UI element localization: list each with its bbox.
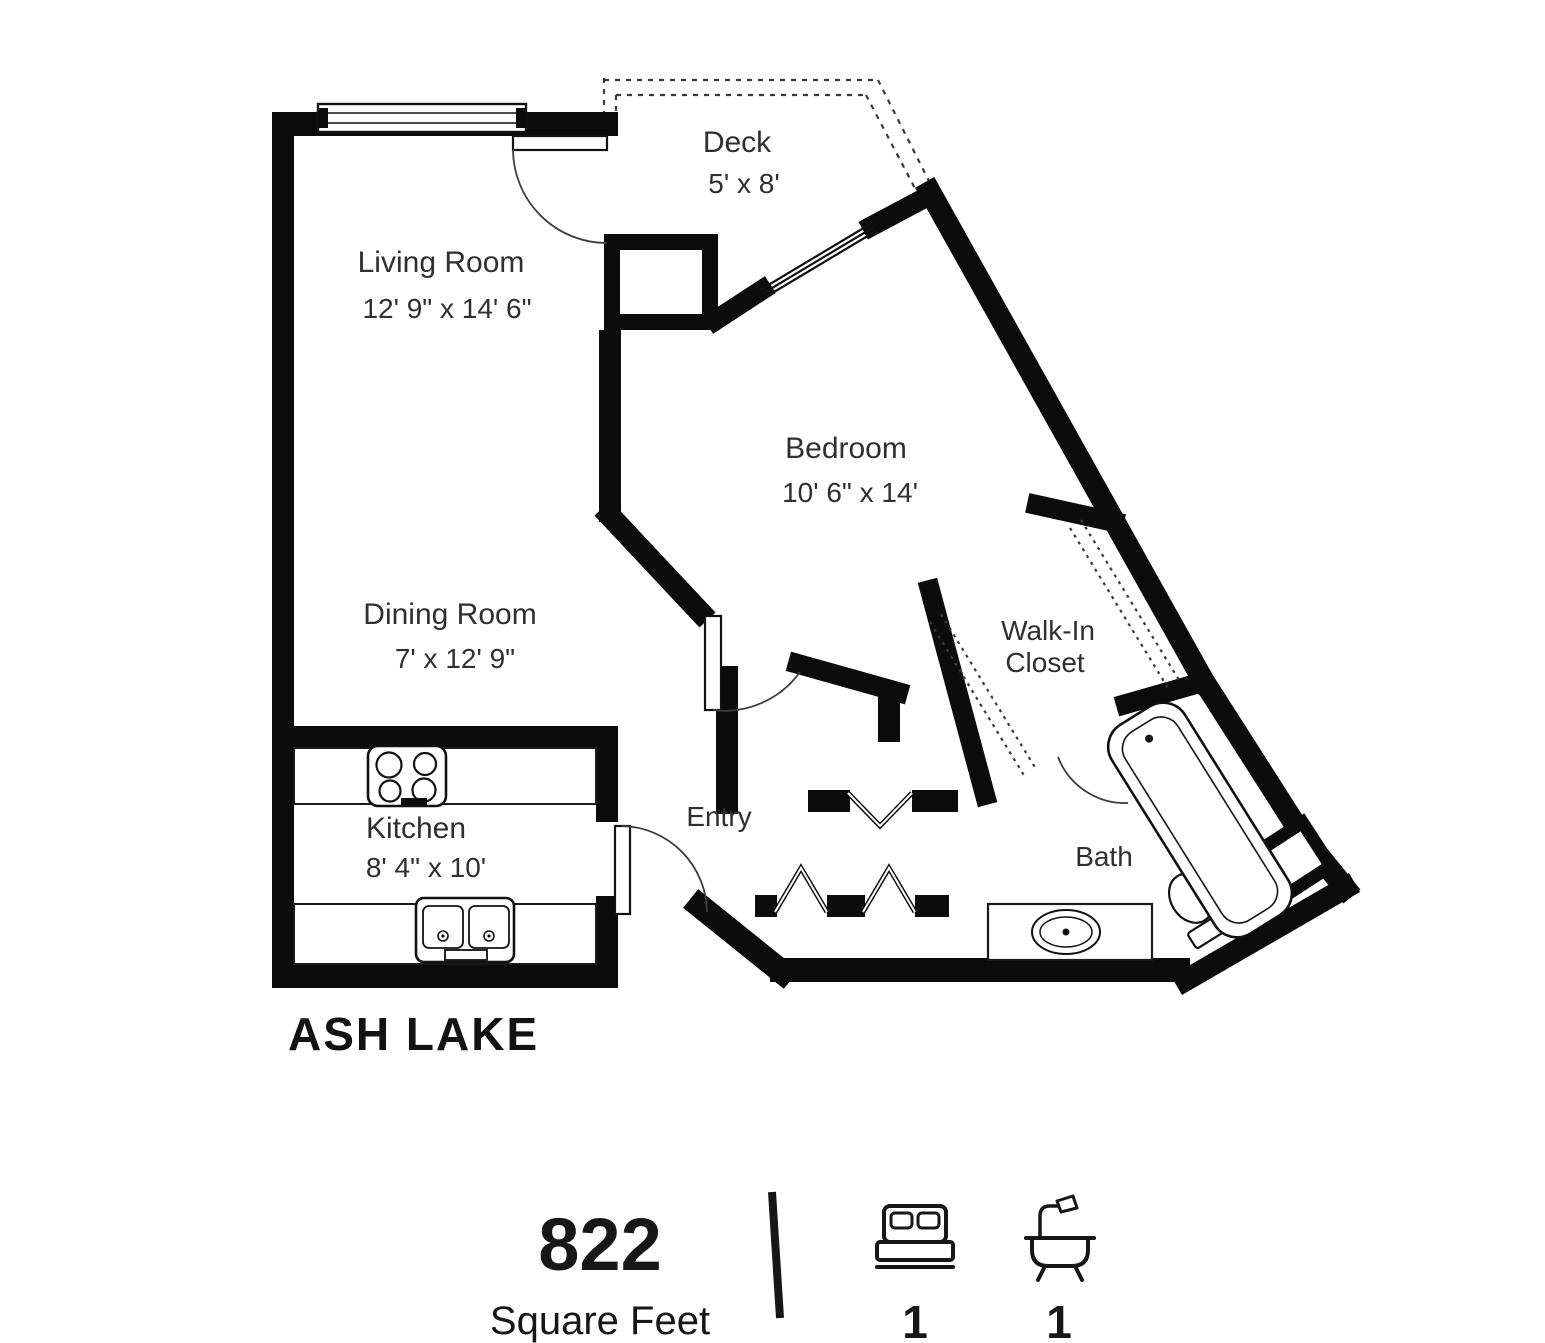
bath-label: Bath (1075, 841, 1133, 872)
plan-title: ASH LAKE (288, 1008, 539, 1060)
wall (596, 726, 618, 822)
wall (808, 790, 850, 812)
floor-plan-svg: Living Room 12' 9" x 14' 6" Deck 5' x 8'… (0, 0, 1545, 1343)
wall (599, 330, 621, 522)
bedroom-door (705, 616, 721, 710)
bath-vanity (988, 904, 1152, 960)
kitchen-sink-icon (416, 898, 514, 962)
entry-label: Entry (686, 801, 751, 832)
deck-door (513, 136, 607, 150)
area-value: 822 (538, 1203, 661, 1286)
wall (610, 516, 700, 612)
living-room-dims: 12' 9" x 14' 6" (362, 293, 531, 324)
wall (872, 194, 932, 226)
bedroom-label: Bedroom (785, 432, 907, 465)
footer: 822 Square Feet 1 1 (490, 1192, 1094, 1343)
bifold-door (848, 793, 912, 826)
column (612, 242, 710, 322)
wall (272, 112, 294, 988)
dining-room-dims: 7' x 12' 9" (395, 643, 515, 674)
bifold-door (775, 868, 827, 912)
wall (755, 895, 777, 917)
window (318, 104, 526, 132)
footer-divider (772, 1192, 780, 1318)
dining-room-label: Dining Room (363, 598, 536, 631)
deck-dims: 5' x 8' (708, 168, 779, 199)
wall (770, 958, 1190, 982)
area-label: Square Feet (490, 1299, 710, 1343)
sliding-door (760, 223, 876, 298)
bedroom-dims: 10' 6" x 14' (782, 477, 918, 508)
bathtub-icon (1026, 1196, 1094, 1280)
wall (716, 290, 762, 320)
deck-door-arc (513, 150, 607, 243)
kitchen-dims: 8' 4" x 10' (366, 852, 486, 883)
wall (930, 192, 1203, 680)
stove-icon (368, 746, 446, 806)
bath-count: 1 (1046, 1296, 1072, 1343)
living-room-label: Living Room (358, 246, 525, 279)
kitchen-label: Kitchen (366, 812, 466, 845)
deck-label: Deck (703, 126, 772, 159)
wall (1126, 682, 1203, 704)
bed-count: 1 (902, 1296, 928, 1343)
wall (930, 590, 985, 795)
wall (827, 895, 865, 917)
bed-icon (877, 1206, 953, 1267)
walk-in-closet-label-line1: Walk-In (1001, 615, 1095, 646)
wall (798, 664, 898, 692)
wall (272, 964, 618, 988)
walk-in-closet-label-line2: Closet (1005, 647, 1085, 678)
wall (915, 895, 949, 917)
front-door (615, 826, 630, 914)
wall (272, 726, 618, 748)
bifold-door (863, 868, 915, 912)
wall (912, 790, 958, 812)
floor-plan-page: Living Room 12' 9" x 14' 6" Deck 5' x 8'… (0, 0, 1545, 1343)
